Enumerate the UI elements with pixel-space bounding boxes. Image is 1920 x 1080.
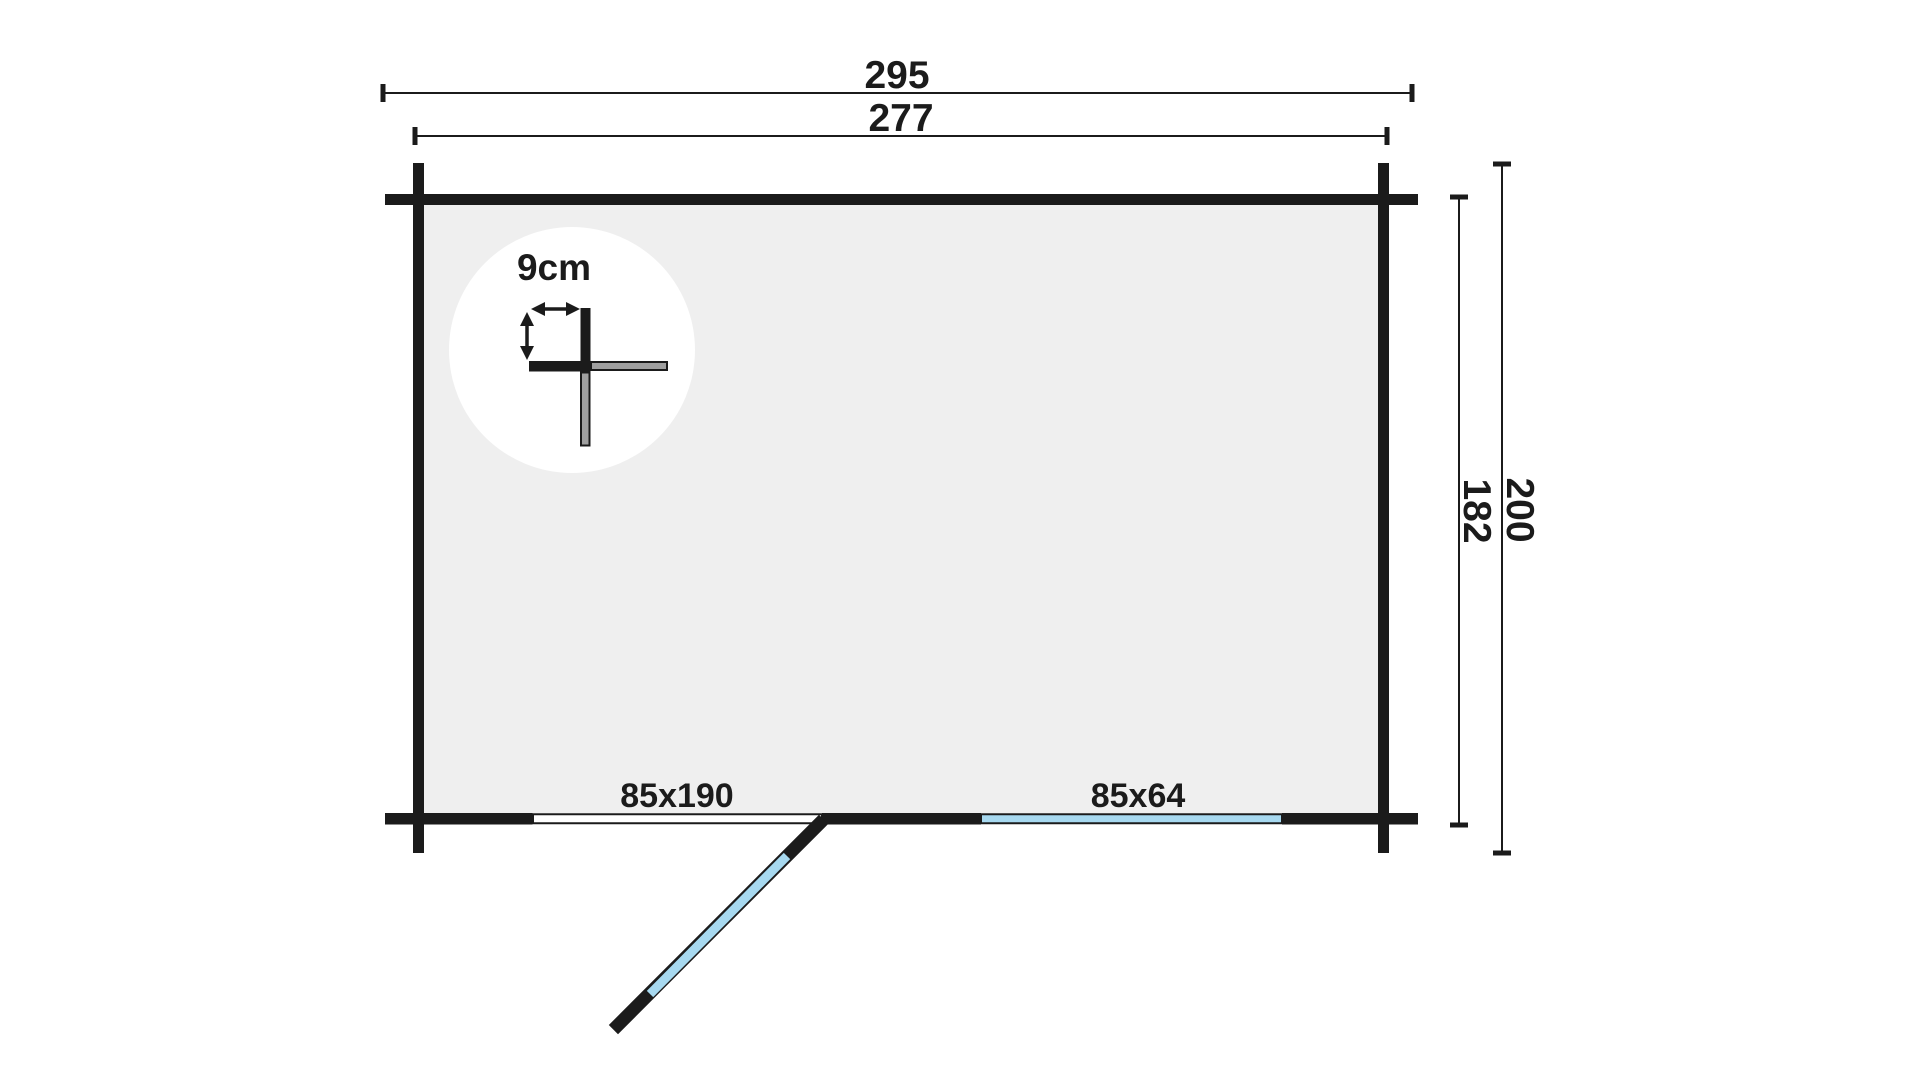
floorplan-canvas: 9cm 295 277 182 200 (0, 0, 1920, 1080)
overall-width-label: 295 (864, 54, 929, 97)
top-wall (385, 194, 1418, 205)
detail-wall-horizontal (529, 361, 591, 372)
overall-depth-label: 200 (1498, 477, 1541, 542)
wall-width-label: 277 (868, 97, 933, 140)
dimension-overall-depth: 200 (1493, 164, 1541, 853)
left-wall (413, 163, 424, 853)
dimension-wall-width: 277 (415, 97, 1387, 145)
door-opening (533, 814, 822, 823)
right-wall (1378, 163, 1389, 853)
door-size-label: 85x190 (620, 777, 733, 815)
wall-thickness-label: 9cm (517, 247, 591, 288)
dimension-overall-width: 295 (383, 54, 1412, 102)
window (981, 814, 1282, 823)
bottom-wall-left-segment (385, 813, 533, 825)
door-leaf (618, 824, 819, 1025)
bottom-wall-right-segment (1282, 813, 1418, 825)
log-end-vertical (581, 373, 590, 446)
floorplan-drawing: 9cm 295 277 182 200 (0, 0, 1920, 1080)
door-leaf-glazing (650, 856, 787, 994)
log-end-horizontal (591, 362, 667, 370)
bottom-wall-middle-segment (822, 813, 981, 825)
wall-depth-label: 182 (1455, 478, 1498, 543)
dimension-wall-depth: 182 (1450, 197, 1498, 825)
window-size-label: 85x64 (1091, 777, 1186, 815)
